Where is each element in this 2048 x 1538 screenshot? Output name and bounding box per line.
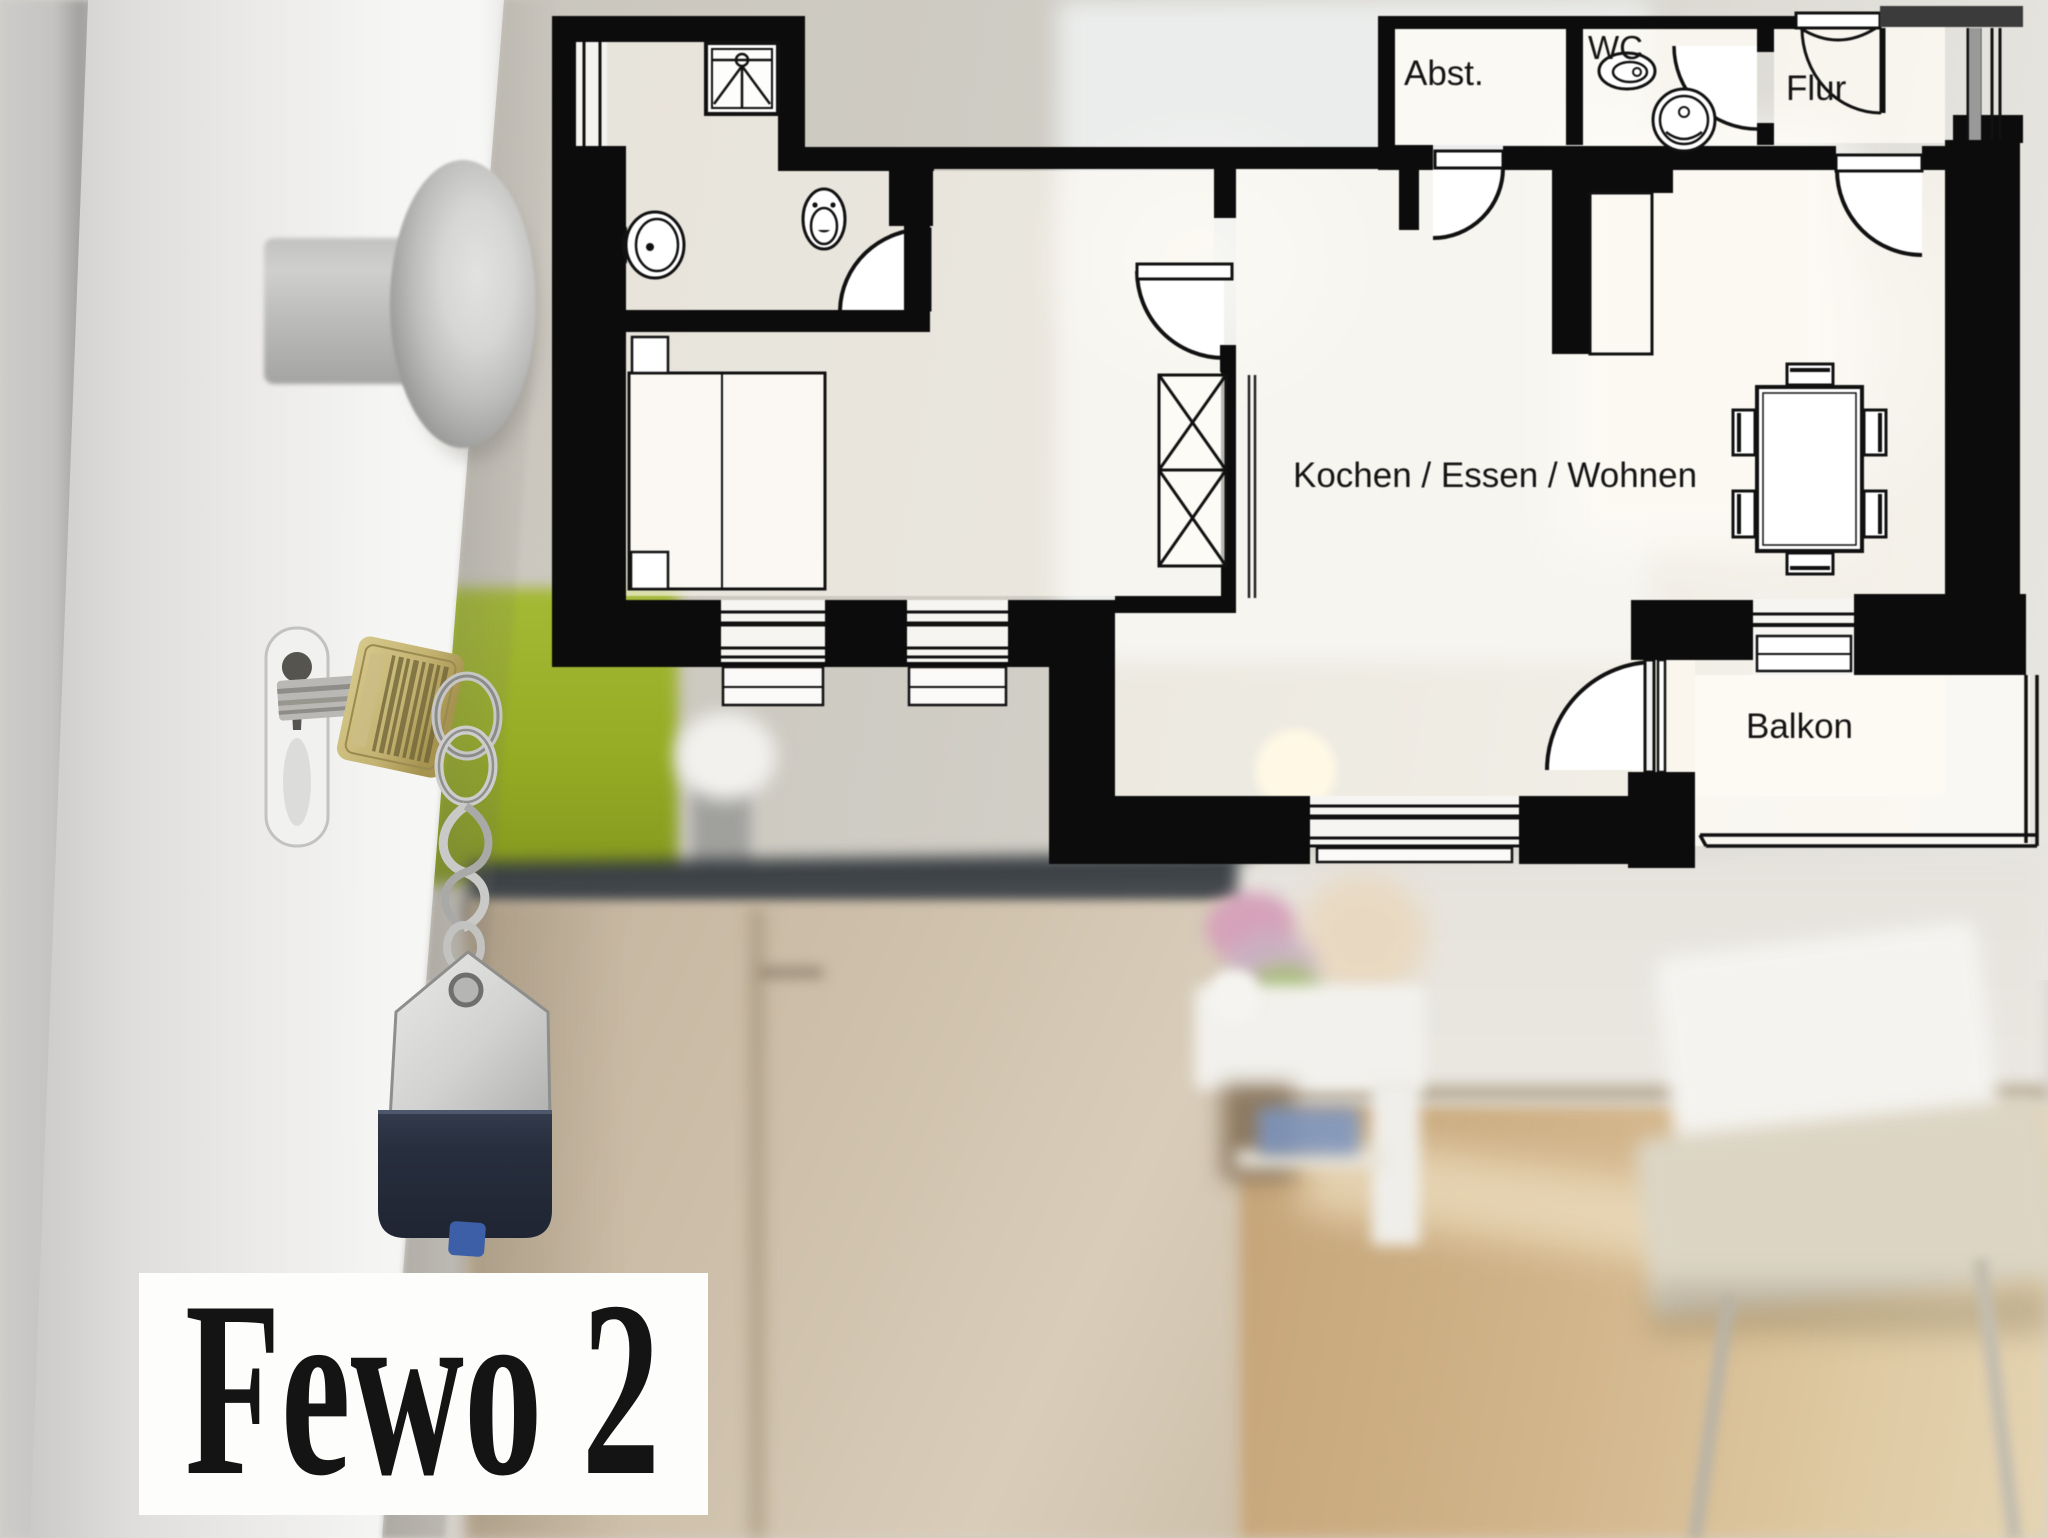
svg-text:Fewo 2: Fewo 2 xyxy=(185,1273,660,1515)
